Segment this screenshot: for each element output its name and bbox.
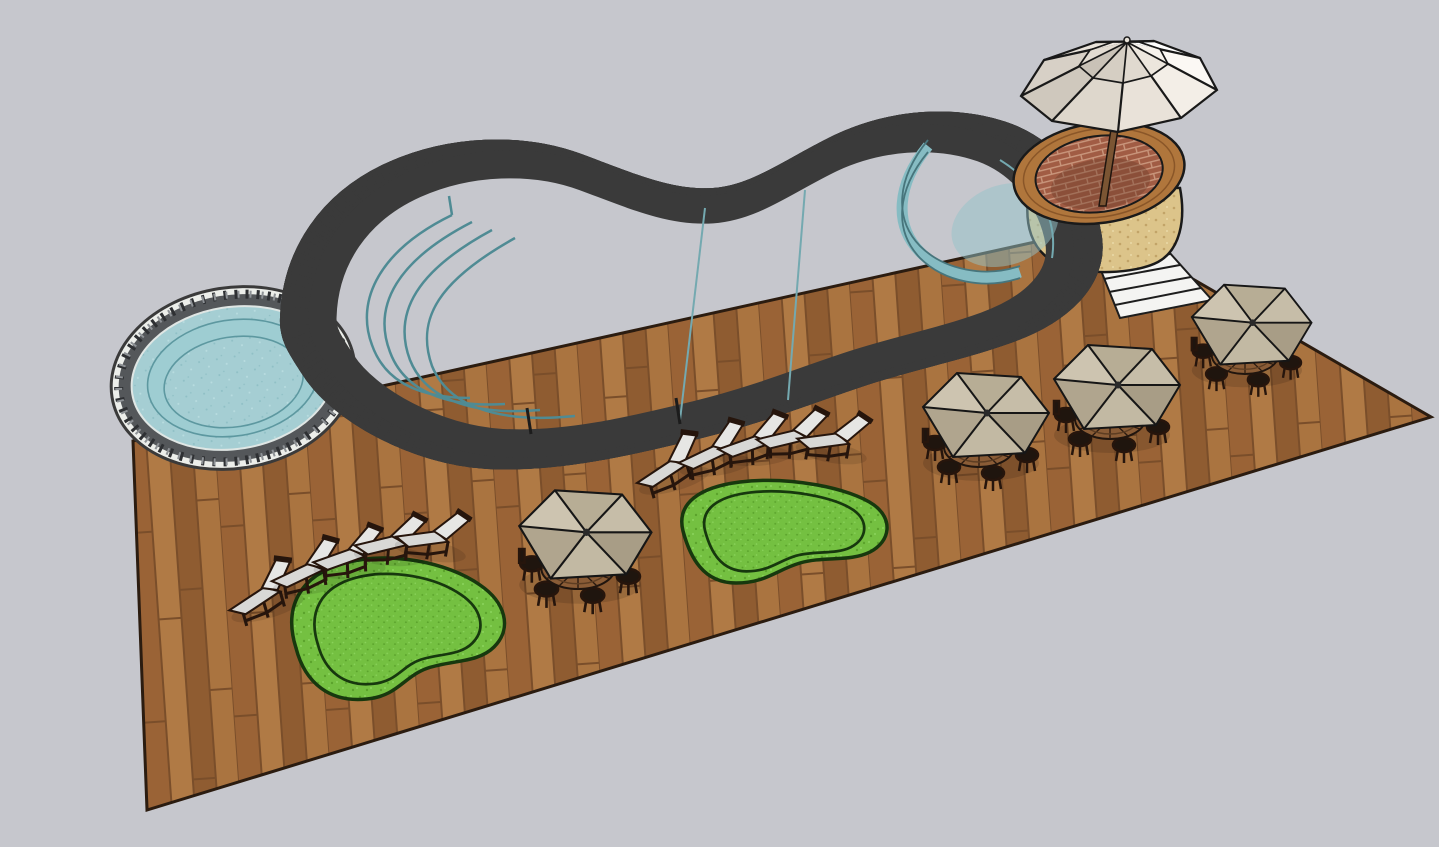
pool-deck-render [0,0,1439,847]
large-umbrella-finial [1124,37,1130,43]
